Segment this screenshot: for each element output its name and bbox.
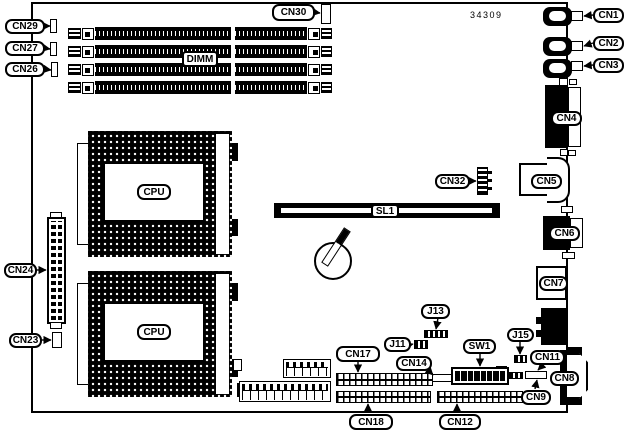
label-sw1: SW1	[463, 339, 496, 354]
label-cn3: CN3	[593, 58, 624, 73]
label-cn9: CN9	[521, 390, 551, 405]
label-sl1: SL1	[371, 204, 399, 218]
label-cpu-2: CPU	[137, 324, 171, 340]
label-cn1: CN1	[593, 8, 624, 23]
label-cn24: CN24	[4, 263, 37, 278]
label-cn6: CN6	[549, 226, 580, 241]
label-cn32: CN32	[435, 174, 470, 189]
diagram-canvas: 34309	[0, 0, 628, 434]
label-cn29: CN29	[5, 19, 45, 34]
label-cn17: CN17	[336, 346, 380, 362]
label-cpu-1: CPU	[137, 184, 171, 200]
label-cn4: CN4	[551, 111, 582, 126]
label-cn7: CN7	[539, 276, 568, 291]
label-cn27: CN27	[5, 41, 45, 56]
label-cn11: CN11	[530, 350, 565, 365]
label-cn30: CN30	[272, 4, 315, 21]
label-dimm: DIMM	[182, 51, 218, 67]
label-cn26: CN26	[5, 62, 45, 77]
label-j11: J11	[384, 337, 411, 352]
label-cn14: CN14	[396, 356, 432, 371]
label-cn5: CN5	[531, 174, 562, 189]
label-j13: J13	[421, 304, 450, 319]
label-cn12: CN12	[439, 414, 481, 430]
label-cn8: CN8	[550, 371, 579, 386]
label-cn23: CN23	[9, 333, 42, 348]
label-j15: J15	[507, 328, 534, 342]
label-cn2: CN2	[593, 36, 624, 51]
leader-lines	[0, 0, 628, 434]
label-cn18: CN18	[349, 414, 393, 430]
